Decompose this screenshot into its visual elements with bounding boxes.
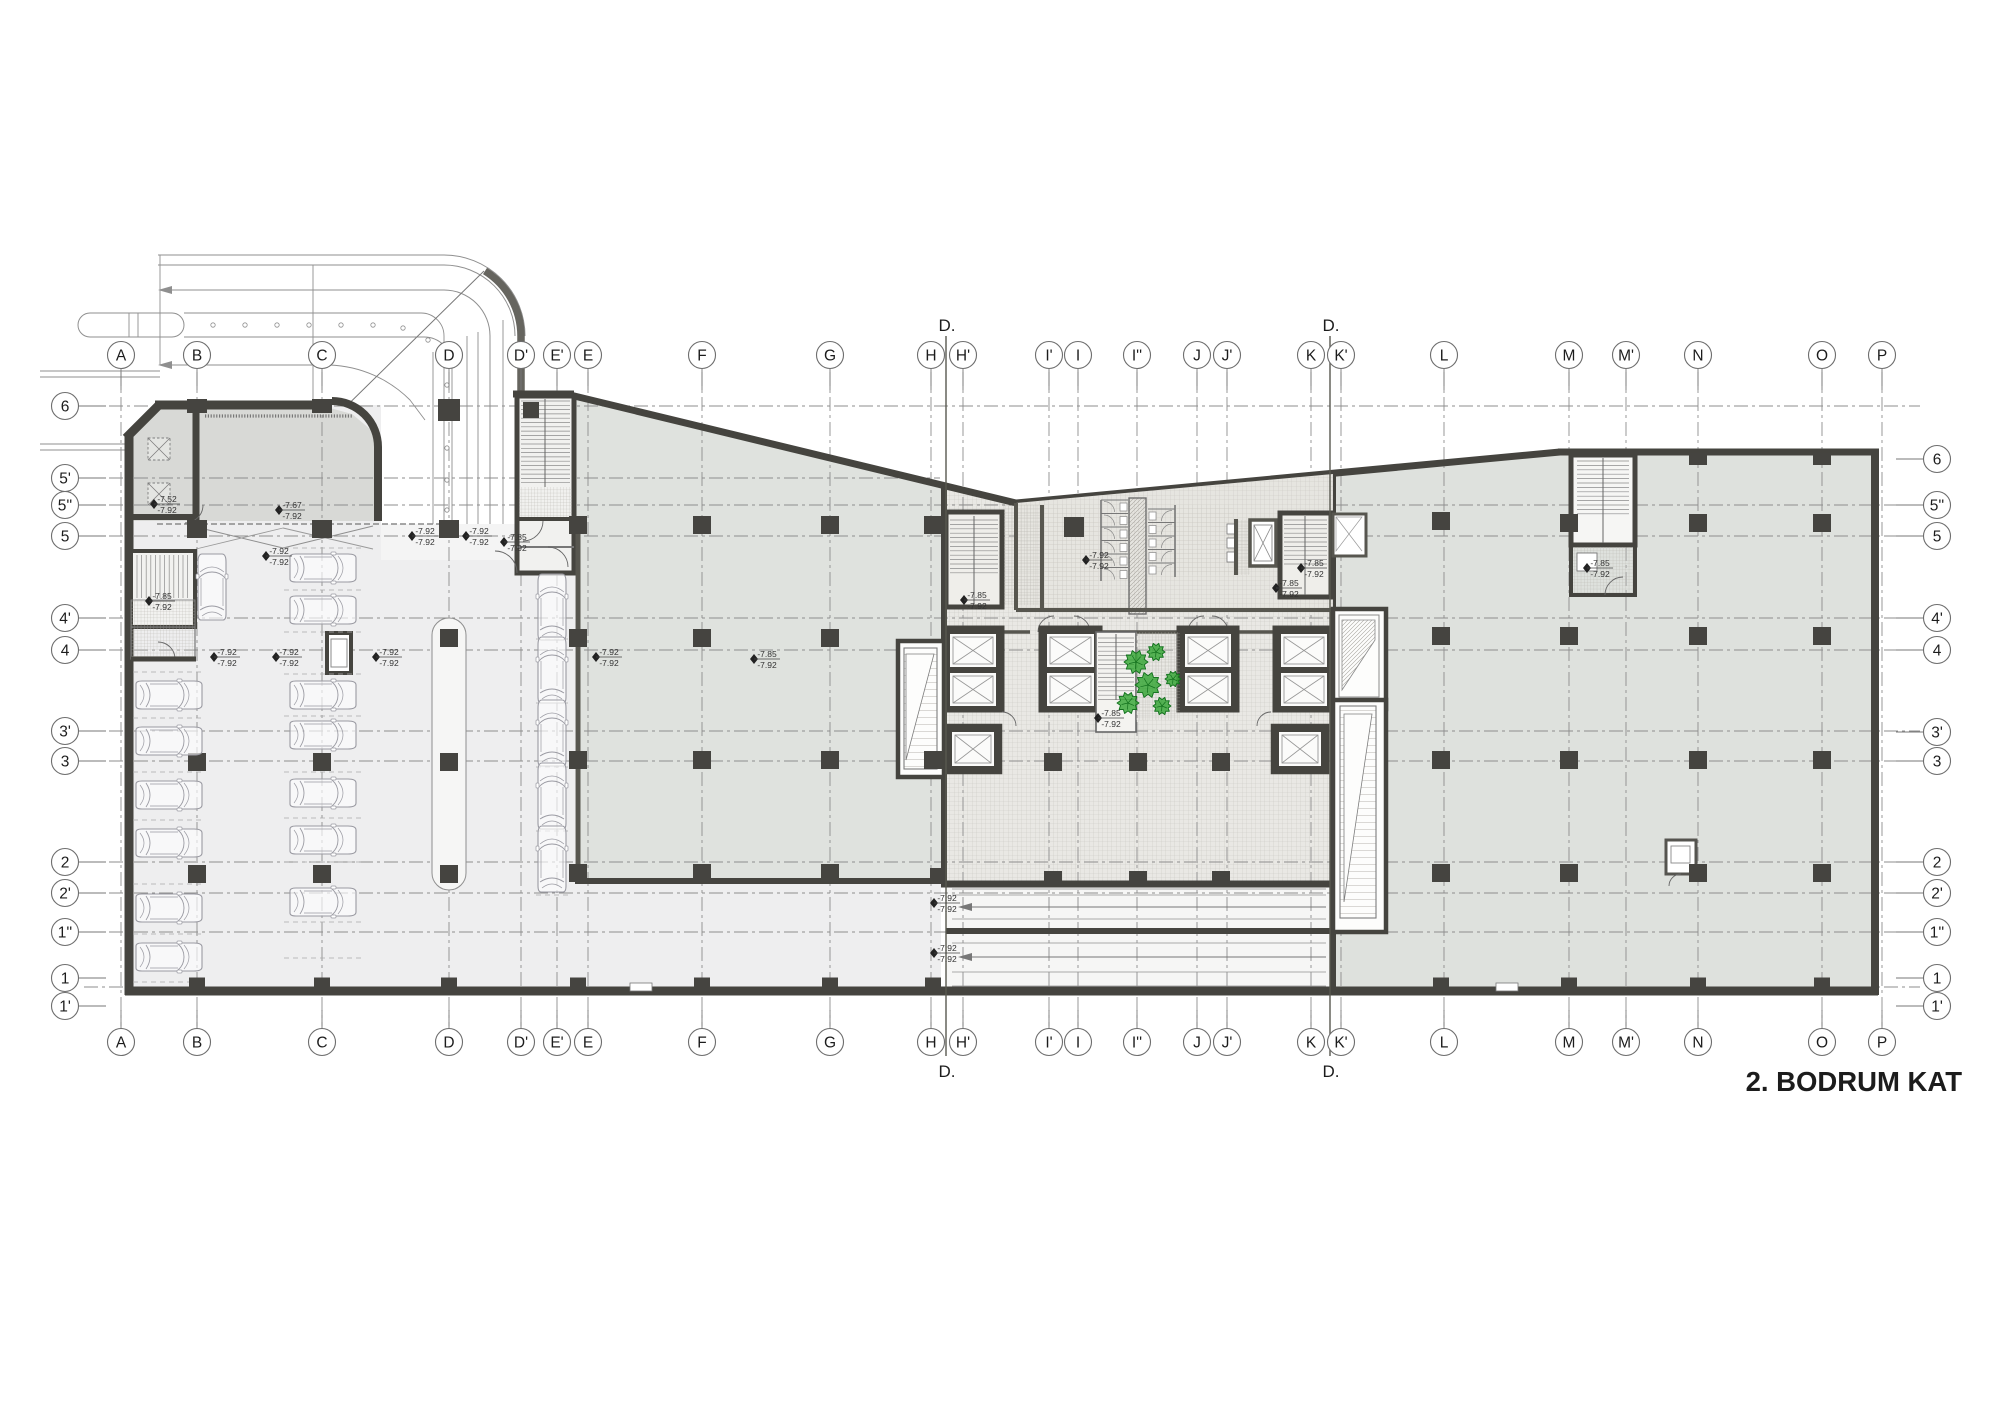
svg-text:5: 5 — [61, 529, 70, 546]
svg-text:-7.92: -7.92 — [152, 602, 172, 612]
svg-text:P: P — [1877, 1035, 1887, 1052]
svg-text:-7.92: -7.92 — [967, 601, 987, 611]
svg-text:I'': I'' — [1132, 348, 1142, 365]
svg-text:G: G — [824, 348, 836, 365]
svg-text:D: D — [443, 348, 454, 365]
svg-text:-7.92: -7.92 — [379, 658, 399, 668]
svg-text:-7.92: -7.92 — [1101, 719, 1121, 729]
svg-text:1'': 1'' — [58, 925, 73, 942]
svg-text:-7.92: -7.92 — [1279, 589, 1299, 599]
svg-text:4: 4 — [61, 643, 70, 660]
svg-text:-7.92: -7.92 — [282, 511, 302, 521]
svg-text:-7.92: -7.92 — [757, 660, 777, 670]
svg-text:D': D' — [514, 1035, 528, 1052]
svg-text:-7.92: -7.92 — [599, 658, 619, 668]
svg-text:-7.92: -7.92 — [1089, 550, 1109, 560]
svg-text:N: N — [1692, 1035, 1703, 1052]
svg-text:M: M — [1563, 1035, 1576, 1052]
svg-text:-7.92: -7.92 — [279, 658, 299, 668]
svg-text:L: L — [1440, 1035, 1449, 1052]
svg-text:F: F — [697, 1035, 706, 1052]
svg-text:N: N — [1692, 348, 1703, 365]
svg-text:2. BODRUM KAT: 2. BODRUM KAT — [1746, 1066, 1963, 1097]
svg-text:M': M' — [1618, 348, 1634, 365]
svg-text:M: M — [1563, 348, 1576, 365]
svg-text:A: A — [116, 1035, 127, 1052]
svg-text:H: H — [925, 348, 936, 365]
svg-text:6: 6 — [61, 399, 70, 416]
svg-text:K: K — [1306, 348, 1317, 365]
svg-text:J: J — [1193, 348, 1201, 365]
svg-text:1'': 1'' — [1930, 925, 1945, 942]
svg-text:I': I' — [1045, 1035, 1052, 1052]
svg-text:2: 2 — [1933, 855, 1942, 872]
svg-text:-7.85: -7.85 — [967, 590, 987, 600]
svg-text:O: O — [1816, 348, 1828, 365]
svg-text:2': 2' — [59, 886, 71, 903]
svg-text:3': 3' — [59, 724, 71, 741]
svg-text:2': 2' — [1931, 886, 1943, 903]
svg-text:B: B — [192, 1035, 202, 1052]
svg-text:-7.92: -7.92 — [1304, 569, 1324, 579]
svg-text:-7.92: -7.92 — [469, 526, 489, 536]
svg-text:6: 6 — [1933, 452, 1942, 469]
svg-text:M': M' — [1618, 1035, 1634, 1052]
svg-text:I: I — [1076, 1035, 1080, 1052]
svg-text:1: 1 — [1933, 971, 1942, 988]
svg-text:D.: D. — [1323, 316, 1340, 335]
svg-text:D.: D. — [939, 316, 956, 335]
svg-text:O: O — [1816, 1035, 1828, 1052]
svg-text:J': J' — [1222, 348, 1233, 365]
svg-text:H': H' — [956, 1035, 970, 1052]
svg-text:I: I — [1076, 348, 1080, 365]
svg-text:-7.92: -7.92 — [507, 543, 527, 553]
svg-text:G: G — [824, 1035, 836, 1052]
svg-text:-7.92: -7.92 — [269, 557, 289, 567]
svg-text:-7.85: -7.85 — [152, 591, 172, 601]
svg-text:D: D — [443, 1035, 454, 1052]
svg-text:5: 5 — [1933, 529, 1942, 546]
svg-text:-7.92: -7.92 — [157, 505, 177, 515]
svg-text:K': K' — [1334, 348, 1347, 365]
svg-text:-7.92: -7.92 — [217, 658, 237, 668]
svg-text:5'': 5'' — [58, 498, 73, 515]
svg-text:E': E' — [550, 348, 563, 365]
svg-text:L: L — [1440, 348, 1449, 365]
svg-text:C: C — [316, 1035, 327, 1052]
svg-text:3: 3 — [1933, 754, 1942, 771]
svg-text:B: B — [192, 348, 202, 365]
svg-text:-7.52: -7.52 — [157, 494, 177, 504]
svg-text:-7.92: -7.92 — [269, 546, 289, 556]
svg-text:1: 1 — [61, 971, 70, 988]
svg-text:J: J — [1193, 1035, 1201, 1052]
svg-text:-7.92: -7.92 — [1089, 561, 1109, 571]
svg-text:E': E' — [550, 1035, 563, 1052]
svg-text:5'': 5'' — [1930, 498, 1945, 515]
svg-text:-7.85: -7.85 — [1590, 558, 1610, 568]
svg-text:-7.92: -7.92 — [937, 954, 957, 964]
svg-text:4: 4 — [1933, 643, 1942, 660]
svg-text:D': D' — [514, 348, 528, 365]
svg-text:P: P — [1877, 348, 1887, 365]
svg-text:3: 3 — [61, 754, 70, 771]
svg-text:3': 3' — [1931, 725, 1943, 742]
svg-text:-7.92: -7.92 — [1590, 569, 1610, 579]
svg-text:-7.85: -7.85 — [1279, 578, 1299, 588]
svg-text:-7.92: -7.92 — [217, 647, 237, 657]
svg-text:-7.92: -7.92 — [415, 537, 435, 547]
svg-text:A: A — [116, 348, 127, 365]
svg-text:H: H — [925, 1035, 936, 1052]
svg-text:C: C — [316, 348, 327, 365]
svg-text:E: E — [583, 348, 593, 365]
svg-text:-7.67: -7.67 — [282, 500, 302, 510]
svg-text:-7.92: -7.92 — [379, 647, 399, 657]
svg-text:5': 5' — [59, 471, 71, 488]
svg-text:2: 2 — [61, 855, 70, 872]
svg-text:1': 1' — [59, 999, 71, 1016]
svg-text:I'': I'' — [1132, 1035, 1142, 1052]
svg-text:H': H' — [956, 348, 970, 365]
svg-text:4': 4' — [59, 611, 71, 628]
svg-text:-7.92: -7.92 — [599, 647, 619, 657]
svg-text:K: K — [1306, 1035, 1317, 1052]
svg-text:J': J' — [1222, 1035, 1233, 1052]
svg-text:K': K' — [1334, 1035, 1347, 1052]
svg-text:F: F — [697, 348, 706, 365]
svg-text:1': 1' — [1931, 999, 1943, 1016]
svg-text:-7.85: -7.85 — [507, 532, 527, 542]
svg-text:-7.92: -7.92 — [279, 647, 299, 657]
svg-text:-7.85: -7.85 — [1304, 558, 1324, 568]
svg-text:-7.92: -7.92 — [469, 537, 489, 547]
svg-text:4': 4' — [1931, 611, 1943, 628]
svg-text:-7.92: -7.92 — [415, 526, 435, 536]
svg-text:-7.92: -7.92 — [937, 904, 957, 914]
svg-text:D.: D. — [939, 1062, 956, 1081]
svg-text:D.: D. — [1323, 1062, 1340, 1081]
svg-text:I': I' — [1045, 348, 1052, 365]
svg-text:-7.85: -7.85 — [757, 649, 777, 659]
svg-text:-7.85: -7.85 — [1101, 708, 1121, 718]
svg-text:-7.92: -7.92 — [937, 893, 957, 903]
svg-text:-7.92: -7.92 — [937, 943, 957, 953]
svg-text:E: E — [583, 1035, 593, 1052]
